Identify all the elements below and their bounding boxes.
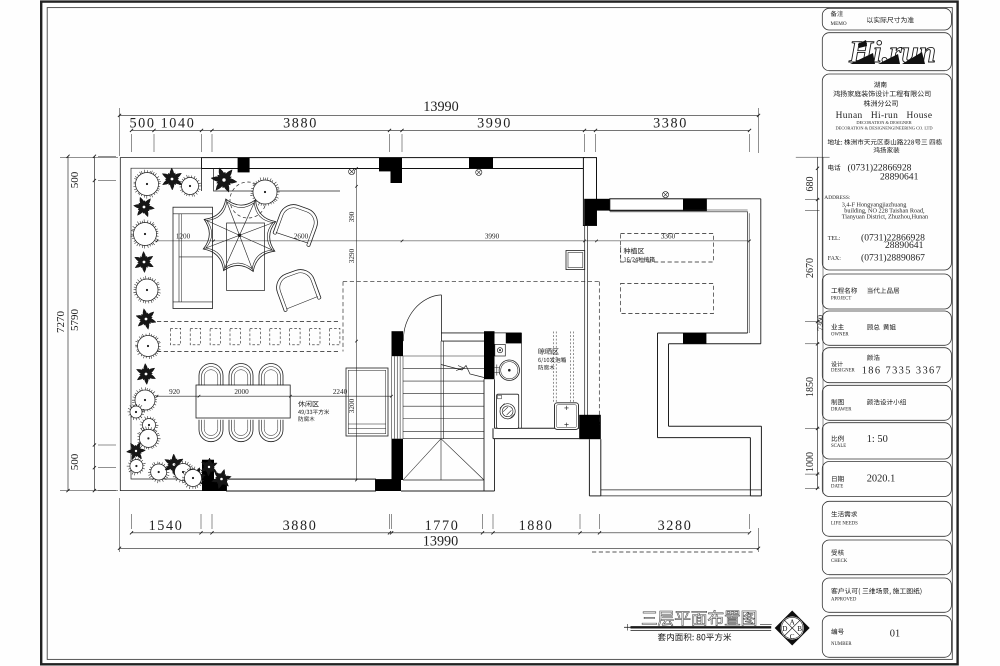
svg-text:500: 500 (69, 453, 81, 470)
svg-text:A: A (790, 619, 796, 627)
svg-text:1850: 1850 (805, 377, 816, 397)
svg-text:1770: 1770 (425, 518, 460, 534)
svg-text:FAX:: FAX: (828, 256, 842, 262)
svg-text:LIFE NEEDS: LIFE NEEDS (831, 522, 858, 527)
svg-text:TEL:: TEL: (828, 236, 841, 242)
svg-text:1540: 1540 (149, 518, 184, 534)
svg-text:2000: 2000 (234, 388, 249, 396)
svg-text:13990: 13990 (423, 533, 458, 549)
svg-text:B: B (797, 625, 802, 633)
svg-text:920: 920 (169, 388, 180, 396)
svg-text:Tianyuan District, Zhuzhou,Hun: Tianyuan District, Zhuzhou,Hunan (842, 213, 928, 220)
svg-text:1200: 1200 (176, 232, 191, 240)
svg-text:3380: 3380 (653, 115, 688, 131)
svg-text:186 7335 3367: 186 7335 3367 (862, 366, 943, 377)
svg-text:DATE: DATE (831, 484, 843, 489)
svg-text:680: 680 (805, 177, 816, 192)
svg-text:3880: 3880 (283, 518, 318, 534)
svg-text:2240: 2240 (333, 388, 348, 396)
svg-text:3990: 3990 (485, 233, 500, 241)
svg-text:MEMO: MEMO (831, 21, 847, 27)
svg-text:APPROVED: APPROVED (831, 597, 857, 602)
svg-text:5790: 5790 (69, 309, 81, 332)
svg-text:1000: 1000 (805, 452, 816, 472)
svg-text:DECORATION & DESIGNER: DECORATION & DESIGNER (856, 120, 911, 125)
svg-text:CHECK: CHECK (831, 559, 848, 564)
svg-text:13990: 13990 (423, 99, 458, 115)
svg-text:7270: 7270 (55, 311, 67, 334)
svg-text:1880: 1880 (519, 518, 554, 534)
svg-text:DESIGNER: DESIGNER (831, 368, 856, 373)
svg-text:1: 50: 1: 50 (867, 434, 888, 445)
svg-text:28890641: 28890641 (885, 240, 924, 251)
svg-text:28890641: 28890641 (880, 171, 919, 182)
svg-text:2670: 2670 (805, 258, 816, 278)
svg-text:390: 390 (348, 211, 356, 222)
svg-text:2020.1: 2020.1 (867, 474, 896, 485)
svg-text:(0731)28890867: (0731)28890867 (861, 252, 925, 263)
svg-text:3360: 3360 (661, 233, 676, 241)
svg-text:500: 500 (69, 171, 81, 188)
svg-text:ADDRESS:: ADDRESS: (824, 195, 851, 201)
svg-text:3990: 3990 (477, 115, 512, 131)
svg-text:1040: 1040 (161, 115, 196, 131)
svg-text:3280: 3280 (658, 518, 693, 534)
svg-text:NUMBER: NUMBER (831, 642, 852, 647)
svg-text:DECORATION & DESIGNENGINEERING: DECORATION & DESIGNENGINEERING CO. LTD (835, 126, 932, 131)
svg-text:01: 01 (890, 629, 900, 640)
svg-text:DRAWER: DRAWER (831, 408, 852, 413)
svg-text:D: D (782, 625, 787, 633)
svg-text:7360: 7360 (816, 315, 825, 331)
svg-text:3880: 3880 (283, 115, 318, 131)
svg-text:3290: 3290 (348, 248, 356, 263)
svg-text:2600: 2600 (294, 232, 309, 240)
svg-text:C: C (790, 633, 795, 641)
svg-text:SCALE: SCALE (831, 444, 846, 449)
svg-text:PROJECT: PROJECT (831, 297, 851, 302)
svg-text:3200: 3200 (348, 398, 356, 413)
svg-text:OWNER: OWNER (831, 333, 849, 338)
svg-text:500: 500 (129, 115, 155, 131)
